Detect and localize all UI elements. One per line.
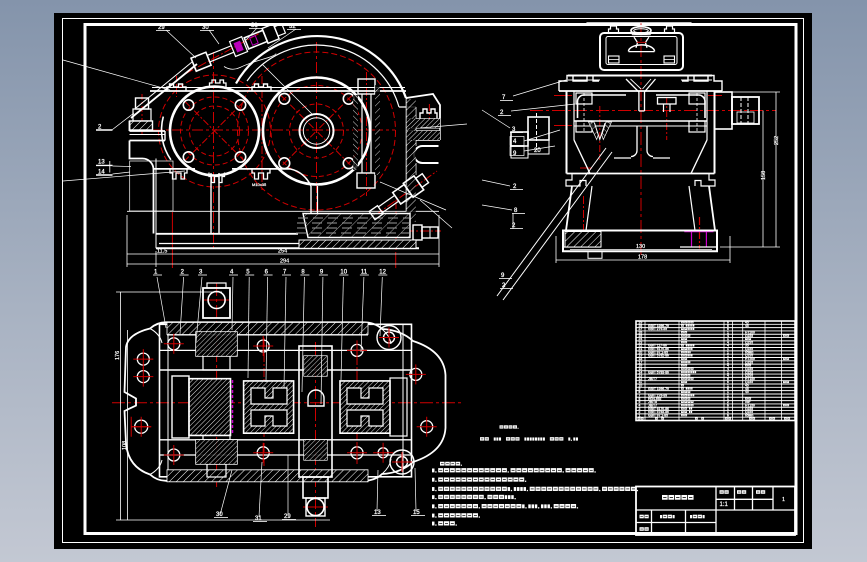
- svg-text:08F: 08F: [745, 400, 751, 404]
- svg-text:1:1: 1:1: [720, 502, 729, 508]
- svg-text:130: 130: [636, 244, 645, 250]
- svg-text:GB/T 117-86: GB/T 117-86: [648, 344, 667, 348]
- svg-text:158: 158: [761, 171, 767, 180]
- svg-text:1: 1: [782, 497, 785, 503]
- svg-text:294: 294: [280, 259, 289, 265]
- svg-text:JB/T7: JB/T7: [648, 377, 657, 381]
- svg-text:Q235: Q235: [745, 367, 753, 371]
- svg-text:HT200: HT200: [745, 331, 755, 335]
- svg-text:11.5: 11.5: [157, 249, 167, 255]
- svg-text:45: 45: [745, 321, 749, 325]
- svg-text:6: 6: [727, 321, 729, 325]
- svg-text:178: 178: [638, 255, 647, 261]
- svg-text:252: 252: [774, 136, 780, 145]
- svg-text:176: 176: [115, 351, 121, 360]
- svg-text:108: 108: [122, 441, 128, 450]
- svg-text:Q235: Q235: [745, 340, 753, 344]
- svg-text:29: 29: [639, 321, 643, 325]
- svg-text:GB/T 276-89: GB/T 276-89: [648, 394, 667, 398]
- svg-text:13: 13: [98, 160, 105, 166]
- svg-text:M10x35: M10x35: [252, 182, 267, 187]
- svg-text:GB/T 1096-79: GB/T 1096-79: [648, 324, 669, 328]
- svg-text:254: 254: [278, 249, 287, 255]
- svg-text:GB/T 1096-79: GB/T 1096-79: [648, 387, 669, 391]
- svg-text:GB/T 5783-86: GB/T 5783-86: [648, 370, 669, 374]
